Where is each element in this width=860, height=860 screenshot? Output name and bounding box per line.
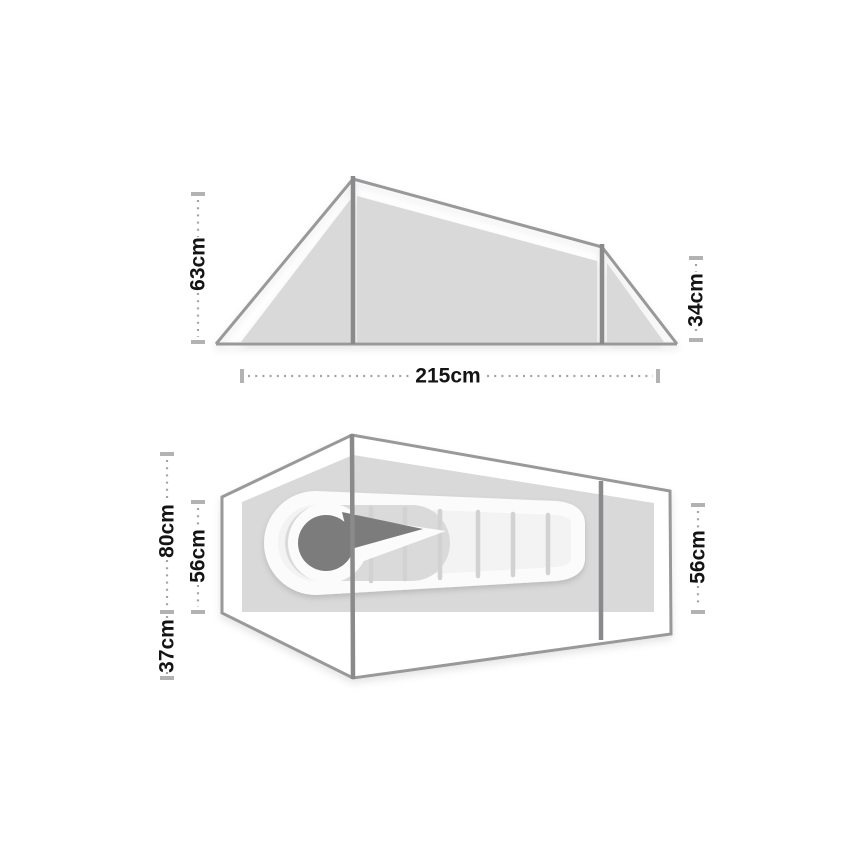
inner-width-right-label: 56cm xyxy=(687,530,710,584)
rear-height-label: 34cm xyxy=(685,273,708,327)
floor-main-pole xyxy=(352,434,353,679)
tent-dimensions-diagram: 63cm 34cm 215cm xyxy=(0,0,860,860)
side-view-tent-shape xyxy=(216,176,677,344)
measure-rear-height: 34cm xyxy=(685,258,708,340)
measure-max-inner-width: 80cm xyxy=(156,454,179,612)
peak-height-label: 63cm xyxy=(187,237,210,291)
measure-vestibule-depth: 37cm xyxy=(156,616,179,678)
measure-length: 215cm xyxy=(242,365,658,388)
max-inner-width-label: 80cm xyxy=(156,504,179,558)
floor-plan-tent-shape xyxy=(222,434,671,679)
floor-plan: 80cm 37cm 56cm 56cm xyxy=(156,434,710,679)
side-fabric-mid-panel xyxy=(357,196,597,342)
sleeping-bag xyxy=(271,498,578,588)
measure-inner-width-right: 56cm xyxy=(687,505,710,612)
inner-width-left-label: 56cm xyxy=(187,529,210,583)
side-fabric-rear-panel xyxy=(607,263,664,342)
length-label: 215cm xyxy=(415,365,480,388)
side-fabric-left-panel xyxy=(241,196,353,342)
side-view: 63cm 34cm 215cm xyxy=(187,176,708,388)
measure-peak-height: 63cm xyxy=(187,194,210,342)
diagram-canvas: 63cm 34cm 215cm xyxy=(0,0,860,860)
vestibule-depth-label: 37cm xyxy=(156,619,179,673)
measure-inner-width-left: 56cm xyxy=(187,502,210,612)
